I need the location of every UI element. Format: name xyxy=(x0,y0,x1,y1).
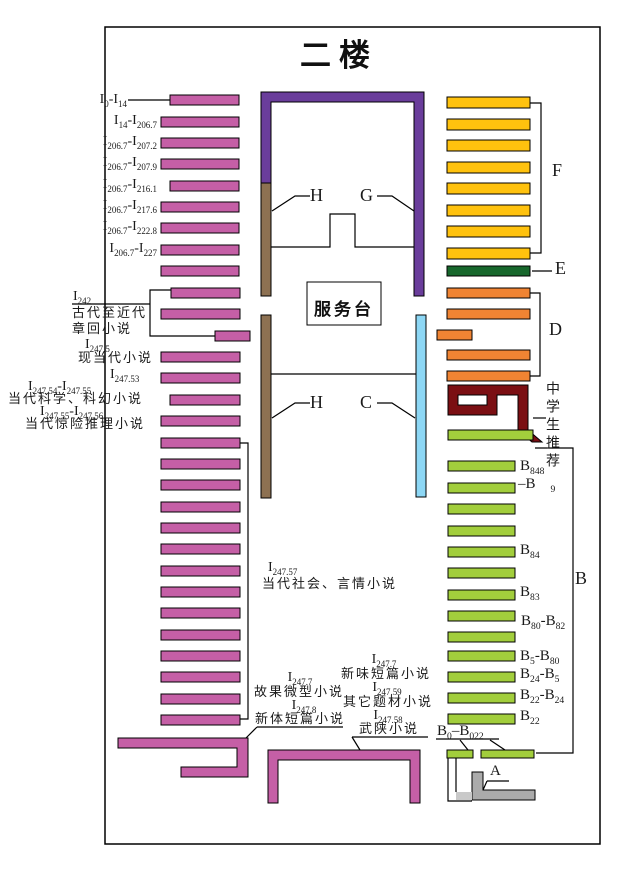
page-title: 二楼 xyxy=(300,30,378,75)
callout-b0-right xyxy=(490,740,505,750)
floor-map: 二楼 服务台 I0-I14I14-I206.7I206.7-I207.2I206… xyxy=(0,0,641,871)
label-b848-b9: –B 9 xyxy=(518,477,555,495)
shelf-brown-upper xyxy=(261,183,271,296)
shelf-bar-pink xyxy=(161,438,240,448)
shelf-bar-yellow xyxy=(447,205,530,216)
bracket-f xyxy=(530,103,541,253)
label-b22-b24: B22-B24 xyxy=(520,688,564,706)
label-i206-7-i222-8: I206.7-I222.8 xyxy=(103,220,157,236)
shelf-bar-pink xyxy=(170,181,239,191)
label-zhanghui: 章回小说 xyxy=(72,322,132,335)
shelf-bar-pink xyxy=(161,117,239,127)
shelf-bar-pink xyxy=(161,159,239,169)
service-desk-label: 服务台 xyxy=(314,295,374,320)
shelf-bar-yellow xyxy=(447,140,530,151)
area-letter-e: E xyxy=(555,259,566,277)
label-qita: 其它题材小说 xyxy=(343,695,433,708)
label-b84: B84 xyxy=(520,543,540,561)
shelf-bar-green xyxy=(448,611,515,621)
shelf-bar-pink xyxy=(161,245,239,255)
label-b0-b022: B0–B022 xyxy=(437,724,484,742)
shelf-bar-pink xyxy=(161,266,239,276)
shelf-bar-yellow xyxy=(447,119,530,130)
callout-a xyxy=(483,781,487,790)
shelf-bar-orange xyxy=(447,371,530,381)
shelf-bar-pink xyxy=(161,202,239,212)
shelf-bar-pink xyxy=(161,138,239,148)
label-xinwei: 新味短篇小说 xyxy=(341,667,431,680)
label-wuxia: 武陕小说 xyxy=(359,722,419,735)
shelf-pink-n xyxy=(268,750,420,803)
shelf-bar-pink xyxy=(161,309,240,319)
shelf-bar-pink xyxy=(161,672,240,682)
shelf-bar-green xyxy=(448,526,515,536)
shelf-bar-green xyxy=(448,504,515,514)
shelf-pink-z xyxy=(118,738,248,777)
shelf-bar-orange xyxy=(437,330,472,340)
area-letter-f: F xyxy=(552,161,562,179)
shelf-bar-pink xyxy=(171,288,240,298)
shelf-bar-pink xyxy=(215,331,250,341)
shelf-bar-darkgreen xyxy=(447,266,530,276)
stairs-gray-light xyxy=(456,792,472,800)
label-i0-i14: I0-I14 xyxy=(100,93,127,109)
shelf-blue xyxy=(416,315,426,497)
shelf-bar-pink xyxy=(161,523,240,533)
wall-purple-u xyxy=(261,92,424,296)
shelf-bar-green xyxy=(448,590,515,600)
area-letter-d: D xyxy=(549,320,562,338)
shelf-bar-orange xyxy=(447,350,530,360)
shelf-bar-yellow xyxy=(447,183,530,194)
label-i206-7-i217-6: I206.7-I217.6 xyxy=(103,199,157,215)
label-b24-b5: B24-B5 xyxy=(520,667,559,685)
shelf-brown-lower xyxy=(261,315,271,498)
area-letter-h-lower: H xyxy=(310,393,323,411)
label-gudai: 古代至近代 xyxy=(72,306,147,319)
shelf-bar-green xyxy=(448,430,533,440)
shelf-bar-pink xyxy=(161,223,239,233)
callout-h-upper xyxy=(272,196,310,211)
shelf-bar-green-bottom xyxy=(447,750,473,758)
label-i247-57: I247.57 xyxy=(268,561,297,577)
area-letter-h-upper: H xyxy=(310,186,323,204)
shelf-bar-green xyxy=(448,547,515,557)
shelf-bar-pink xyxy=(170,395,240,405)
shelf-bar-green-bottom xyxy=(481,750,534,758)
label-b848: B848 xyxy=(520,459,544,477)
shelf-bar-yellow xyxy=(447,248,530,259)
shelf-bar-pink xyxy=(161,694,240,704)
label-jingxian: 当代惊险推理小说 xyxy=(25,417,145,430)
shelf-bar-pink xyxy=(161,459,240,469)
shelf-bar-orange xyxy=(447,288,530,298)
bracket-d xyxy=(530,293,540,376)
label-shehui: 当代社会、言情小说 xyxy=(262,577,397,590)
shelf-bar-pink xyxy=(161,651,240,661)
shelf-bar-pink xyxy=(161,715,240,725)
shelf-bar-pink xyxy=(161,352,240,362)
shelf-bar-green xyxy=(448,461,515,471)
bracket-i247-57 xyxy=(240,443,248,719)
label-i242: I242 xyxy=(73,290,91,306)
shelf-bar-green xyxy=(448,651,515,661)
label-guguo: 故果微型小说 xyxy=(254,685,344,698)
shelf-bar-green xyxy=(448,693,515,703)
stairs-gray-l xyxy=(472,772,535,800)
area-letter-b: B xyxy=(575,569,587,587)
label-i206-7-i216-1: I206.7-I216.1 xyxy=(103,178,157,194)
label-zhongxuesheng: 中学生推荐 xyxy=(544,381,558,471)
shelf-bar-pink xyxy=(161,416,240,426)
shelf-bar-yellow xyxy=(447,226,530,237)
label-i14-i206-7: I14-I206.7 xyxy=(114,114,157,130)
shelf-bar-pink xyxy=(161,544,240,554)
wall-upper-room xyxy=(271,214,414,247)
label-i206-7-i207-2: I206.7-I207.2 xyxy=(103,135,157,151)
shelf-bar-pink xyxy=(161,502,240,512)
area-letter-g: G xyxy=(360,186,373,204)
shelf-bar-pink xyxy=(161,566,240,576)
shelf-bar-yellow xyxy=(447,97,530,108)
shelf-bar-yellow xyxy=(447,162,530,173)
label-xiandangdai: 现当代小说 xyxy=(78,351,153,364)
shelf-bar-green xyxy=(448,568,515,578)
shelf-bar-pink xyxy=(161,630,240,640)
label-xinti: 新体短篇小说 xyxy=(255,712,345,725)
shelf-bar-green xyxy=(448,632,515,642)
callout-h-lower xyxy=(272,403,310,418)
area-letter-c: C xyxy=(360,393,372,411)
label-i206-7-i227: I206.7-I227 xyxy=(109,242,157,258)
callout-wuxia xyxy=(352,737,360,750)
shelf-bar-pink xyxy=(161,480,240,490)
label-b80-b82: B80-B82 xyxy=(521,614,565,632)
shelf-bar-green xyxy=(448,672,515,682)
shelf-bar-pink xyxy=(161,373,240,383)
shelf-bar-pink xyxy=(161,608,240,618)
shelf-bar-pink xyxy=(170,95,239,105)
area-letter-a: A xyxy=(490,764,501,779)
label-b22: B22 xyxy=(520,709,540,727)
label-b5-b80: B5-B80 xyxy=(520,649,559,667)
callout-c-lower xyxy=(377,403,415,418)
label-i206-7-i207-9: I206.7-I207.9 xyxy=(103,156,157,172)
shelf-bar-green xyxy=(448,483,515,493)
callout-xinti xyxy=(246,727,257,738)
shelf-bar-orange xyxy=(447,309,530,319)
callout-g-upper xyxy=(377,196,414,211)
label-b83: B83 xyxy=(520,585,540,603)
label-i247-53: I247.53 xyxy=(110,368,139,384)
shelf-bar-pink xyxy=(161,587,240,597)
